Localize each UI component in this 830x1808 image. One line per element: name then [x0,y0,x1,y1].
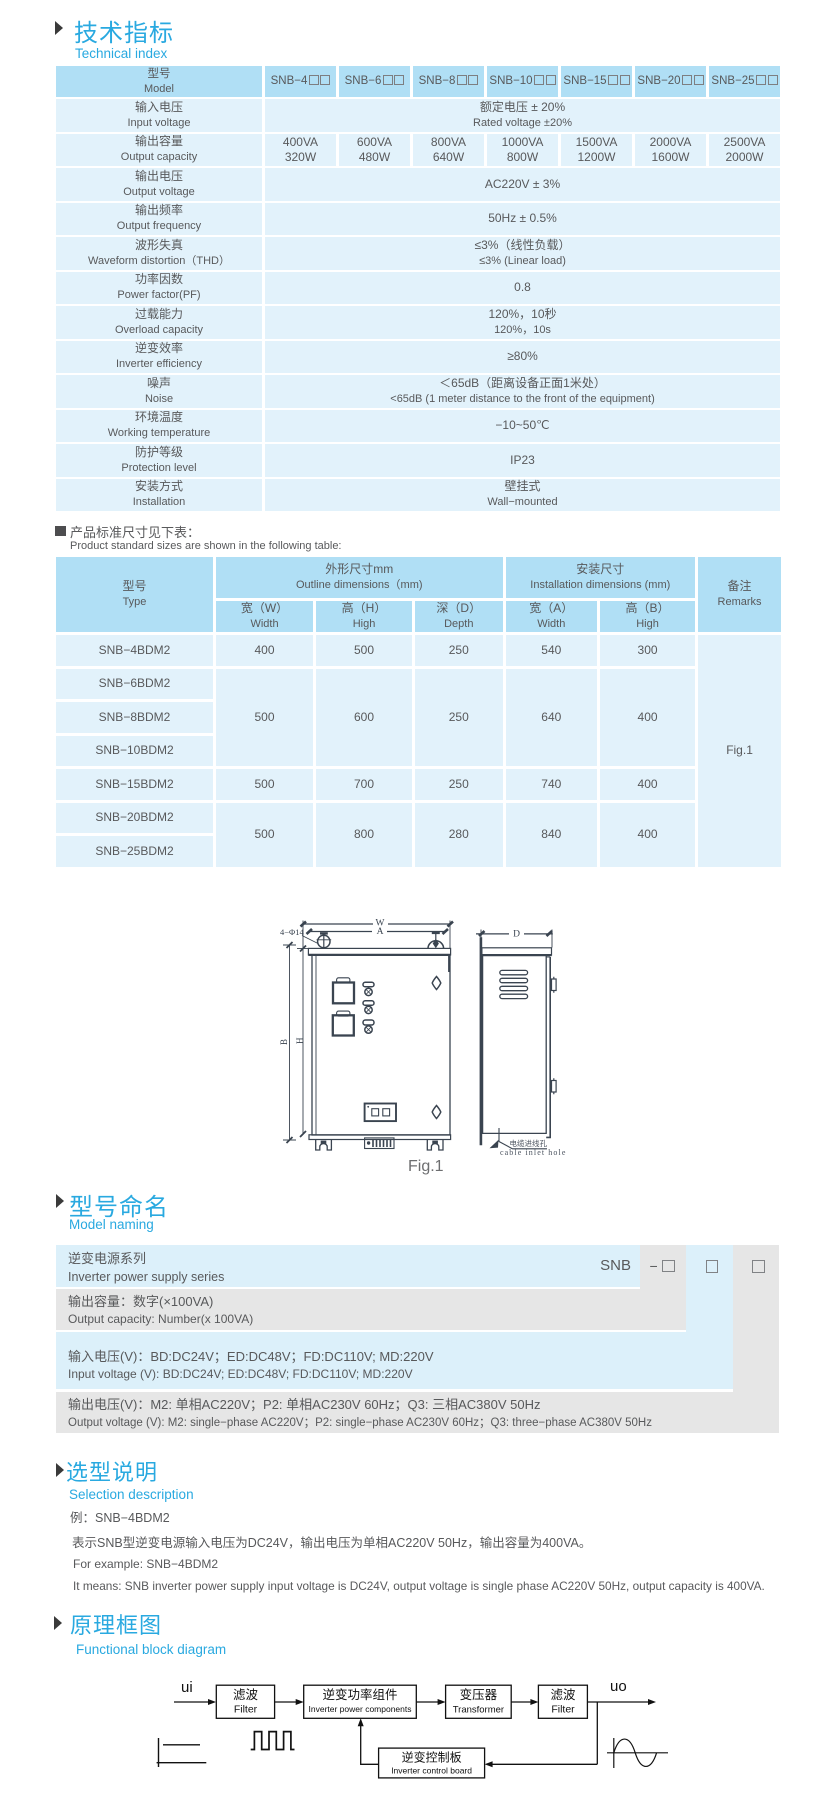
svg-text:Filter: Filter [234,1704,258,1716]
svg-text:Filter: Filter [551,1704,575,1716]
svg-text:B: B [279,1039,289,1045]
svg-text:滤波: 滤波 [233,1688,259,1702]
svg-text:变压器: 变压器 [460,1687,498,1702]
svg-text:逆变功率组件: 逆变功率组件 [322,1687,397,1702]
svg-text:4−Φ14: 4−Φ14 [280,927,305,937]
svg-text:cable inlet hole: cable inlet hole [500,1148,566,1157]
svg-text:H: H [295,1037,305,1044]
svg-text:电缆进线孔: 电缆进线孔 [510,1138,548,1148]
svg-text:滤波: 滤波 [550,1688,576,1702]
svg-text:D: D [513,930,520,940]
svg-text:A: A [377,927,384,937]
svg-text:ui: ui [181,1679,193,1696]
svg-text:Inverter control board: Inverter control board [391,1766,472,1776]
svg-text:逆变控制板: 逆变控制板 [402,1750,462,1765]
svg-text:uo: uo [610,1678,627,1695]
svg-text:Transformer: Transformer [453,1705,504,1716]
svg-text:Inverter power components: Inverter power components [309,1704,412,1714]
